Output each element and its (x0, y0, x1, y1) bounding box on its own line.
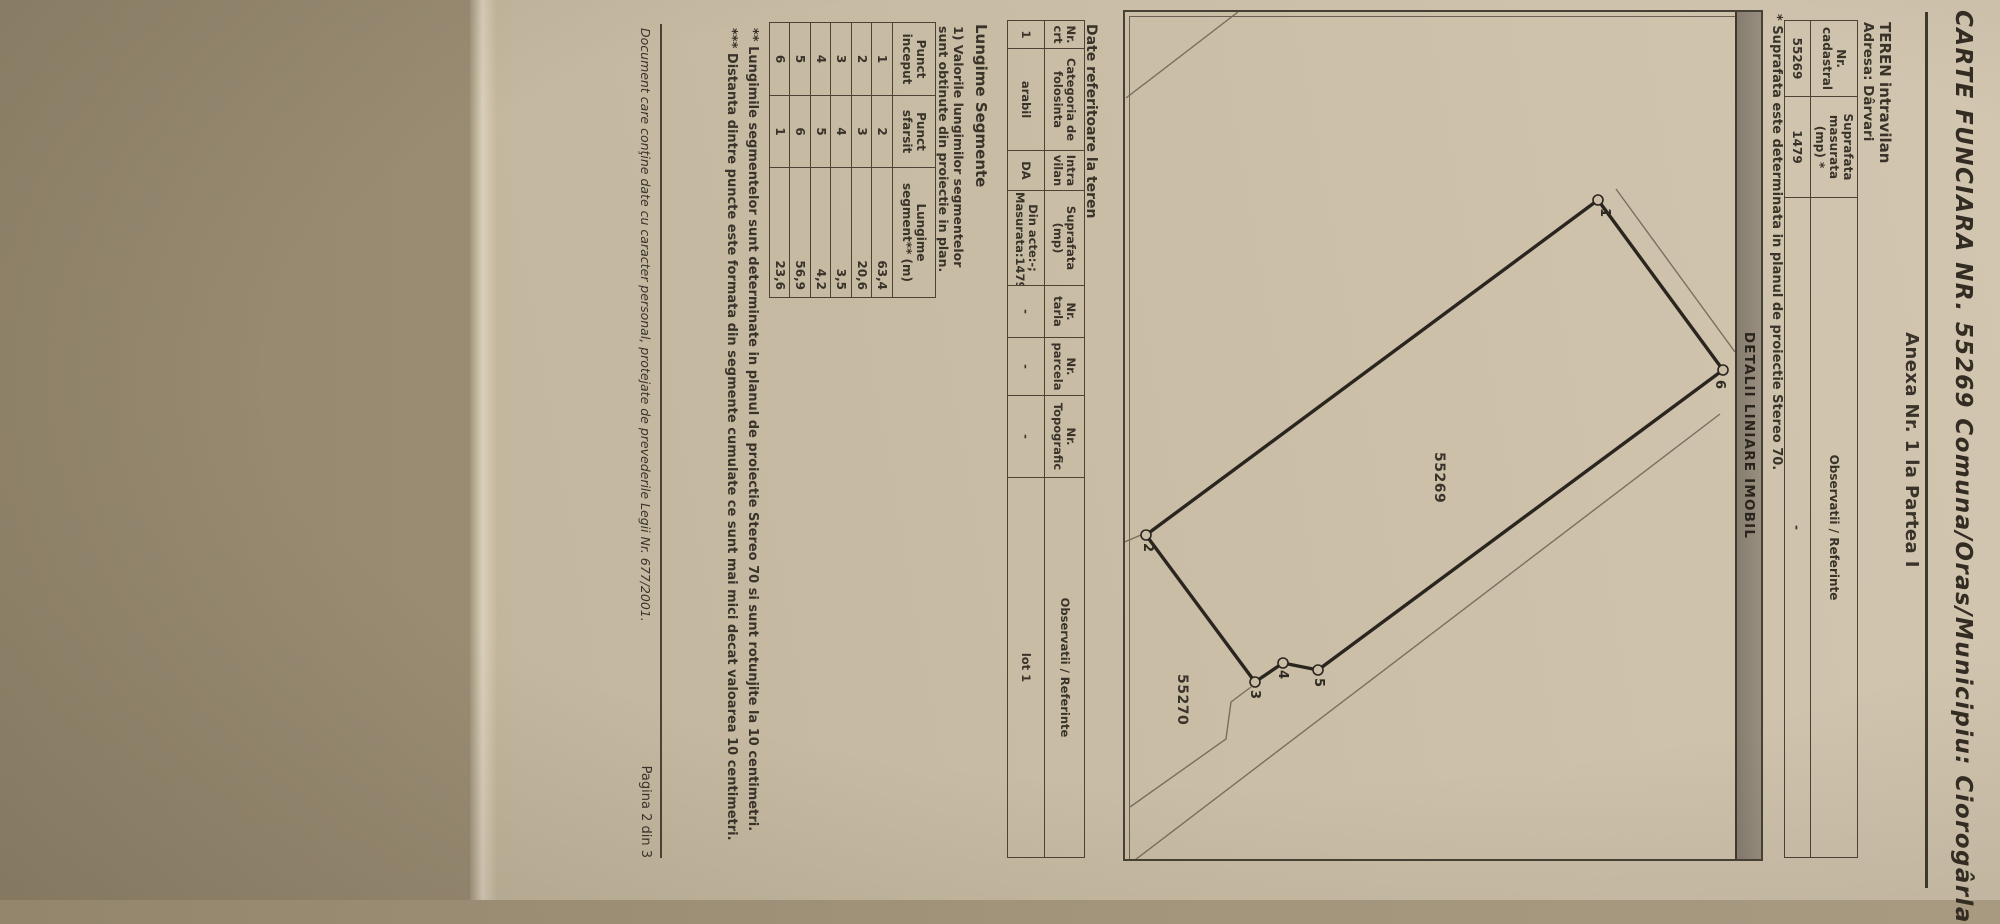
col-punct-sfarsit: Punct sfarsit (893, 96, 936, 168)
seg-length: 63,4 (872, 168, 893, 298)
date-teren-title: Date referitoare la teren (1083, 24, 1099, 219)
observatii-value: - (1785, 198, 1811, 858)
col-suprafata: Suprafata (mp) (1045, 191, 1085, 286)
seg-length: 4,2 (811, 168, 832, 298)
page-footer: Document care conţine date cu caracter p… (638, 28, 653, 858)
cadastral-summary-table: Nr. cadastral Suprafata masurata (mp) * … (1784, 20, 1858, 858)
table-header-row: Nr. cadastral Suprafata masurata (mp) * … (1811, 21, 1858, 858)
segments-note: 1) Valorile lungimilor segmentelor sunt … (936, 26, 966, 272)
seg-end: 6 (790, 96, 811, 168)
seg-end: 2 (872, 96, 893, 168)
col-tarla: Nr. tarla (1045, 286, 1085, 338)
observatii-value: lot 1 (1008, 478, 1045, 858)
col-categoria: Categoria de folosinta (1045, 49, 1085, 151)
teren-heading: TEREN intravilan (1876, 22, 1894, 163)
seg-length: 3,5 (831, 168, 852, 298)
table-row: 55269 1479 - (1785, 21, 1811, 858)
segment-row: 2 3 20,6 (852, 23, 873, 298)
table-row: 1 arabil DA Din acte:-; Masurata:1479 - … (1008, 21, 1045, 858)
seg-length: 20,6 (852, 168, 873, 298)
table-header-row: Nr. crt Categoria de folosinta Intra vil… (1045, 21, 1085, 858)
suprafata-value: Din acte:-; Masurata:1479 (1008, 191, 1045, 286)
segments-table: Punct inceput Punct sfarsit Lungime segm… (769, 22, 936, 298)
col-parcela: Nr. parcela (1045, 338, 1085, 396)
segments-note-line2: sunt obtinute din proiectie in plan. (936, 26, 951, 272)
seg-length: 56,9 (790, 168, 811, 298)
plan-title-bar: DETALII LINIARE IMOBIL (1735, 12, 1761, 859)
col-topografic: Nr. Topografic (1045, 396, 1085, 478)
seg-start: 4 (811, 23, 832, 96)
col-nr-crt: Nr. crt (1045, 21, 1085, 49)
seg-length: 23,6 (770, 168, 791, 298)
document-title: CARTE FUNCIARA NR. 55269 Comuna/Oras/Mun… (1950, 10, 1976, 894)
photo-of-document: { "colors": {"paper":"#cbbfa8","ink":"#3… (0, 0, 2000, 900)
paper-edge-fold (470, 0, 498, 900)
plan-title: DETALII LINIARE IMOBIL (1741, 332, 1757, 539)
document-page: CARTE FUNCIARA NR. 55269 Comuna/Oras/Mun… (497, 0, 2000, 900)
col-lungime: Lungime segment** (m) (893, 168, 936, 298)
privacy-notice: Document care conţine date cu caracter p… (638, 28, 653, 622)
footer-separator (660, 24, 662, 858)
col-suprafata-masurata: Suprafata masurata (mp) * (1811, 97, 1858, 198)
page-number: Pagina 2 din 3 (638, 766, 653, 858)
seg-start: 3 (831, 23, 852, 96)
footnote-double-star: ** Lungimile segmentelor sunt determinat… (745, 28, 760, 856)
teren-details-table: Nr. crt Categoria de folosinta Intra vil… (1007, 20, 1085, 858)
categoria-value: arabil (1008, 49, 1045, 151)
cadastral-plan-box: 1 2 3 4 5 6 55269 55270 DETALII LINIARE … (1123, 10, 1763, 861)
segment-row: 5 6 56,9 (790, 23, 811, 298)
seg-end: 1 (770, 96, 791, 168)
table-header-row: Punct inceput Punct sfarsit Lungime segm… (893, 23, 936, 298)
title-underline (1926, 12, 1929, 888)
seg-start: 6 (770, 23, 791, 96)
crt-value: 1 (1008, 21, 1045, 49)
segment-row: 3 4 3,5 (831, 23, 852, 298)
col-punct-inceput: Punct inceput (893, 23, 936, 96)
seg-end: 5 (811, 96, 832, 168)
plan-inner-border (1129, 16, 1737, 859)
seg-start: 5 (790, 23, 811, 96)
seg-end: 4 (831, 96, 852, 168)
tarla-value: - (1008, 286, 1045, 338)
segment-row: 6 1 23,6 (770, 23, 791, 298)
segments-title: Lungime Segmente (972, 24, 990, 187)
teren-address: Adresa: Dârvari (1860, 22, 1876, 141)
footnote-stereo70: * Suprafata este determinata in planul d… (1769, 14, 1784, 470)
col-intravilan: Intra vilan (1045, 151, 1085, 191)
topografic-value: - (1008, 396, 1045, 478)
segment-row: 1 2 63,4 (872, 23, 893, 298)
col-observatii: Observatii / Referinte (1045, 478, 1085, 858)
seg-start: 1 (872, 23, 893, 96)
seg-start: 2 (852, 23, 873, 96)
intravilan-value: DA (1008, 151, 1045, 191)
parcela-value: - (1008, 338, 1045, 396)
col-observatii: Observatii / Referinte (1811, 198, 1858, 858)
measured-area: 1479 (1785, 97, 1811, 198)
segment-row: 4 5 4,2 (811, 23, 832, 298)
annex-title: Anexa Nr. 1 la Partea I (1901, 0, 1922, 900)
footnote-triple-star: *** Distanta dintre puncte este formata … (724, 28, 739, 856)
segments-note-line1: 1) Valorile lungimilor segmentelor (951, 26, 966, 272)
cadastral-number: 55269 (1785, 21, 1811, 97)
seg-end: 3 (852, 96, 873, 168)
col-nr-cadastral: Nr. cadastral (1811, 21, 1858, 97)
